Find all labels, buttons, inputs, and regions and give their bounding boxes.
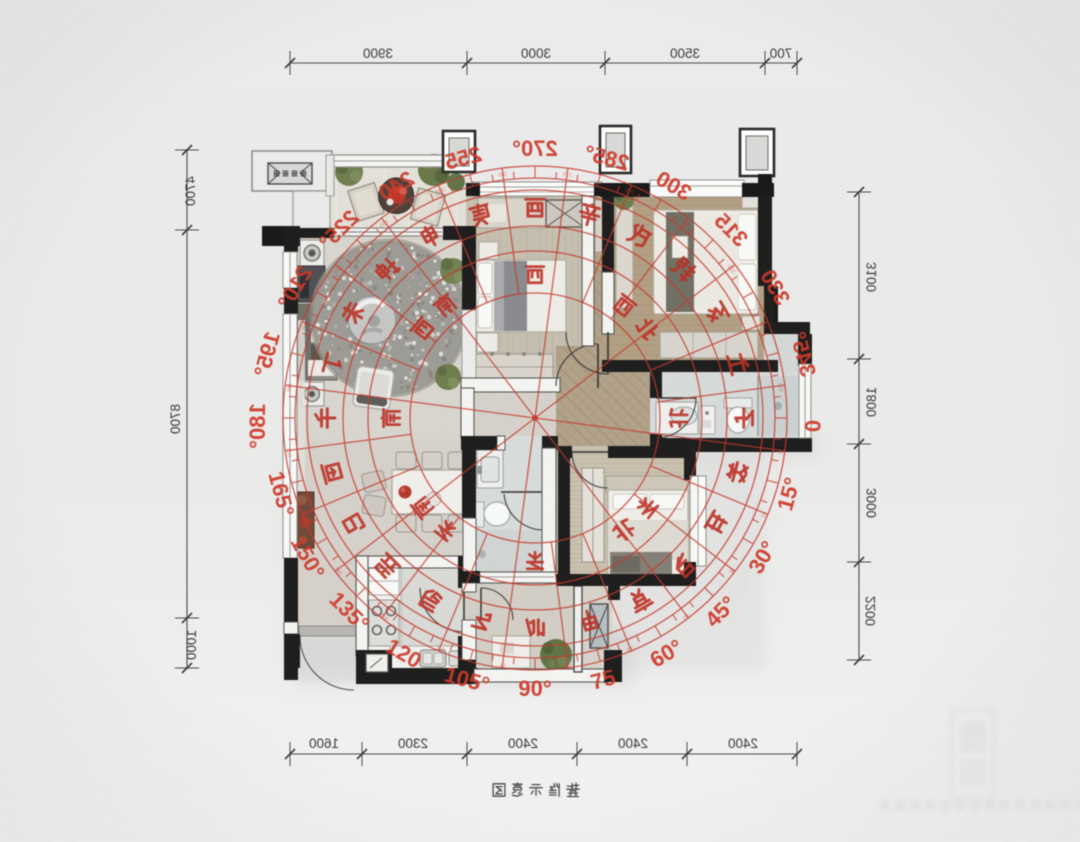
svg-text:4700: 4700	[183, 176, 198, 206]
svg-text:2400: 2400	[618, 736, 648, 751]
svg-text:3000: 3000	[521, 46, 551, 61]
svg-text:3000: 3000	[864, 488, 879, 518]
svg-text:1600: 1600	[309, 736, 339, 751]
svg-text:3100: 3100	[864, 262, 879, 292]
svg-text:2200: 2200	[863, 596, 878, 626]
svg-text:1000: 1000	[184, 630, 199, 660]
svg-text:2300: 2300	[398, 736, 428, 751]
svg-text:1800: 1800	[864, 387, 879, 417]
svg-text:2400: 2400	[728, 736, 758, 751]
svg-text:700: 700	[770, 46, 793, 61]
svg-text:3500: 3500	[670, 46, 700, 61]
svg-text:8700: 8700	[168, 404, 183, 434]
svg-text:3900: 3900	[363, 46, 393, 61]
svg-text:2400: 2400	[508, 736, 538, 751]
